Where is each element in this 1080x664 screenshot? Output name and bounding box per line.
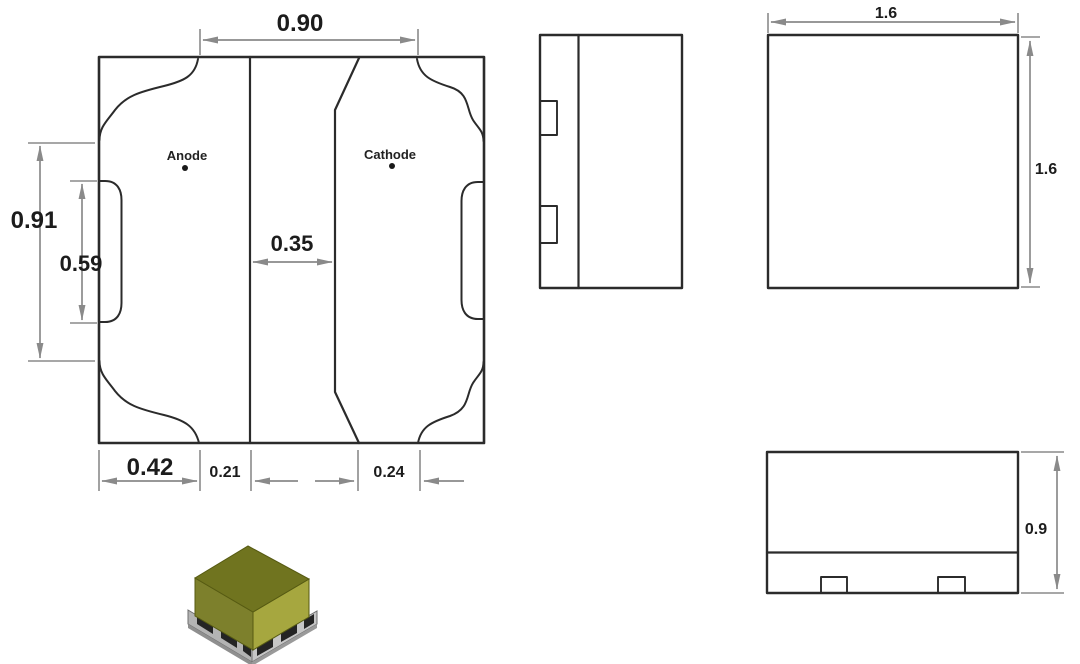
dim-inner-height: 0.59 <box>60 251 103 276</box>
dim-top-view-width: 1.6 <box>875 5 897 22</box>
front-view-terminal-left <box>821 577 847 593</box>
dim-center-gap: 0.35 <box>271 231 314 256</box>
dim-anode-to-center: 0.21 <box>209 464 240 481</box>
footprint-dimensions: 0.90 0.91 0.59 0.35 0.42 0.21 0.24 <box>11 10 464 491</box>
dim-top-width: 0.90 <box>277 10 324 37</box>
dim-top-view-height: 1.6 <box>1035 161 1057 178</box>
corner-curve-top-right <box>417 59 484 141</box>
anode-label: Anode <box>167 148 207 163</box>
corner-curve-bottom-right <box>418 362 484 443</box>
dim-outer-height: 0.91 <box>11 207 58 234</box>
right-edge-pill-notch <box>462 182 485 319</box>
cathode-label: Cathode <box>364 147 416 162</box>
front-view-terminal-right <box>938 577 965 593</box>
corner-curve-bottom-left <box>100 361 200 443</box>
top-view-outline <box>768 35 1018 288</box>
cathode-polarity-dot <box>389 163 395 169</box>
side-view-terminal-bottom <box>540 206 557 243</box>
front-view-outline <box>767 452 1018 593</box>
package-top-view: 1.6 1.6 <box>768 5 1057 288</box>
cathode-pad-left-edge <box>335 58 359 443</box>
anode-polarity-dot <box>182 165 188 171</box>
side-view-terminal-top <box>540 101 557 135</box>
dim-anode-width: 0.42 <box>127 454 174 481</box>
package-side-view <box>540 35 682 288</box>
led-3d-render <box>188 546 317 664</box>
package-front-view: 0.9 <box>767 452 1064 593</box>
dim-front-view-height: 0.9 <box>1025 521 1047 538</box>
dim-cathode-inset: 0.24 <box>373 464 404 481</box>
corner-curve-top-left <box>100 59 199 140</box>
side-view-outline <box>540 35 682 288</box>
led-package-drawing: Anode Cathode 0.90 0.91 0.59 0.35 0.42 <box>0 0 1080 664</box>
